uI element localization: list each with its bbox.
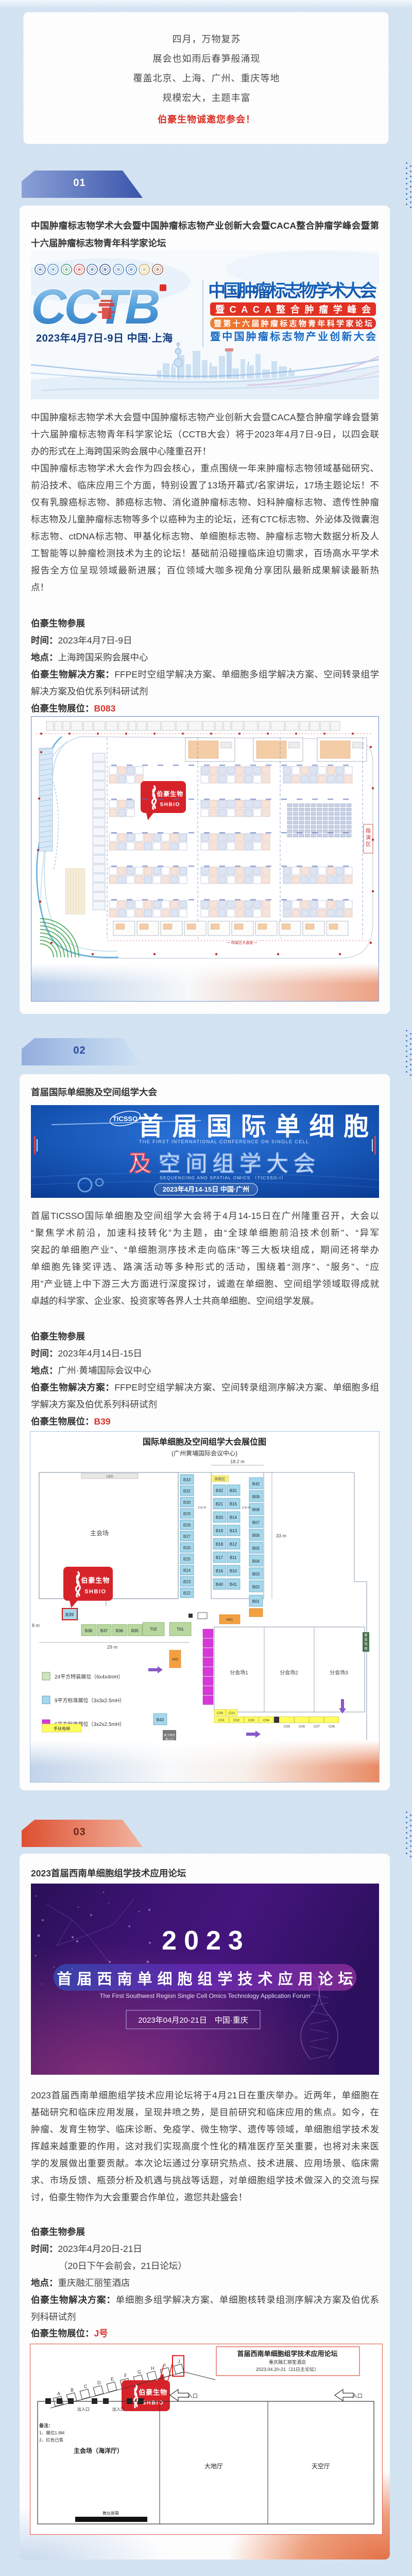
- svg-text:29 m: 29 m: [107, 1645, 117, 1650]
- svg-text:THE FIRST INTERNATIONAL CONFER: THE FIRST INTERNATIONAL CONFERENCE ON SI…: [139, 1139, 309, 1144]
- svg-text:B28: B28: [183, 1523, 191, 1528]
- svg-text:H02: H02: [172, 1658, 179, 1662]
- svg-text:直: 直: [364, 1638, 367, 1642]
- svg-text:2、红色已售: 2、红色已售: [39, 2437, 63, 2443]
- svg-text:B04: B04: [252, 1559, 260, 1564]
- svg-text:舞台屏幕: 舞台屏幕: [102, 2511, 119, 2516]
- svg-text:B12: B12: [230, 1542, 237, 1547]
- svg-text:B01: B01: [252, 1599, 260, 1604]
- svg-text:B26: B26: [183, 1546, 191, 1550]
- svg-text:地下停车: 地下停车: [164, 1733, 176, 1737]
- svg-text:区: 区: [366, 841, 371, 848]
- svg-text:入口: 入口: [352, 2394, 363, 2399]
- svg-text:B27: B27: [183, 1534, 191, 1539]
- svg-text:主会场（海洋厅）: 主会场（海洋厅）: [74, 2447, 123, 2454]
- svg-text:B: B: [71, 2387, 74, 2393]
- svg-text:B15: B15: [230, 1502, 237, 1506]
- svg-text:B02: B02: [252, 1585, 260, 1589]
- svg-text:国际单细胞及空间组学大会展位图: 国际单细胞及空间组学大会展位图: [143, 1437, 266, 1447]
- svg-text:B10: B10: [230, 1569, 237, 1573]
- svg-text:2023年4月7日-9日 中国·上海: 2023年4月7日-9日 中国·上海: [36, 332, 173, 344]
- svg-text:H01: H01: [227, 1618, 233, 1622]
- svg-text:B03: B03: [252, 1572, 260, 1577]
- svg-text:B32: B32: [183, 1489, 191, 1494]
- svg-text:C09: C09: [217, 1711, 223, 1715]
- svg-text:B37: B37: [100, 1629, 108, 1633]
- svg-text:梯: 梯: [364, 1647, 367, 1651]
- svg-text:C02: C02: [233, 1719, 239, 1722]
- svg-text:演: 演: [366, 834, 371, 841]
- svg-text:SEQUENCING AND SPATIAL OMICS （: SEQUENCING AND SPATIAL OMICS （TICSSO-I）: [160, 1175, 286, 1180]
- svg-text:出入口: 出入口: [112, 2406, 125, 2412]
- svg-text:G: G: [138, 2369, 141, 2375]
- svg-text:SHBIO: SHBIO: [160, 802, 180, 807]
- svg-text:(广州黄埔国际会议中心): (广州黄埔国际会议中心): [171, 1449, 237, 1457]
- svg-text:手扶电梯: 手扶电梯: [54, 1726, 70, 1731]
- svg-text:C05: C05: [284, 1725, 290, 1728]
- svg-text:C01: C01: [218, 1719, 225, 1722]
- svg-text:B13: B13: [230, 1529, 237, 1533]
- svg-text:J: J: [178, 2359, 180, 2364]
- svg-text:2023年4月14-15日 中国·广州: 2023年4月14-15日 中国·广州: [163, 1185, 249, 1193]
- svg-text:LED: LED: [106, 1475, 113, 1479]
- svg-text:C03: C03: [248, 1719, 254, 1722]
- svg-text:T02: T02: [150, 1627, 157, 1632]
- svg-text:SHBIO: SHBIO: [84, 1588, 106, 1595]
- svg-text:重庆融汇丽笙酒店: 重庆融汇丽笙酒店: [269, 2359, 306, 2365]
- svg-text:B40: B40: [216, 1582, 224, 1587]
- svg-text:H: H: [151, 2366, 154, 2371]
- svg-text:伯豪生物: 伯豪生物: [157, 790, 183, 798]
- svg-text:出入口: 出入口: [77, 2406, 90, 2412]
- svg-text:电: 电: [364, 1642, 367, 1646]
- svg-text:B42: B42: [252, 1482, 260, 1486]
- svg-text:B31: B31: [230, 1488, 237, 1493]
- svg-text:C: C: [84, 2384, 88, 2389]
- svg-text:2.6 m: 2.6 m: [198, 1506, 206, 1510]
- svg-text:B11: B11: [230, 1555, 237, 1560]
- svg-text:入口: 入口: [187, 2394, 198, 2399]
- svg-text:B29: B29: [183, 1512, 191, 1516]
- svg-text:B18: B18: [216, 1542, 224, 1547]
- svg-text:2023: 2023: [162, 1926, 250, 1956]
- svg-text:B38: B38: [85, 1629, 93, 1633]
- svg-text:C06: C06: [299, 1725, 305, 1728]
- svg-text:B22: B22: [183, 1591, 191, 1596]
- svg-text:B05: B05: [252, 1546, 260, 1551]
- svg-text:伯豪生物: 伯豪生物: [139, 2388, 167, 2396]
- svg-text:分会场2: 分会场2: [280, 1669, 298, 1676]
- svg-text:1、展位1.8M: 1、展位1.8M: [39, 2430, 64, 2435]
- svg-text:2.6 m: 2.6 m: [242, 1506, 250, 1510]
- svg-text:2023年04月20-21日 中国·重庆: 2023年04月20-21日 中国·重庆: [138, 2016, 248, 2025]
- svg-text:B39: B39: [65, 1612, 74, 1617]
- svg-text:首届国际单细胞: 首届国际单细胞: [138, 1113, 369, 1141]
- svg-text:B41: B41: [230, 1582, 237, 1587]
- svg-text:B07: B07: [252, 1520, 260, 1525]
- svg-text:18.2 m: 18.2 m: [230, 1459, 245, 1464]
- svg-text:分会场1: 分会场1: [230, 1669, 248, 1676]
- svg-text:C07: C07: [314, 1725, 320, 1728]
- svg-text:9平方标准展位（3x3x2.5mH）: 9平方标准展位（3x3x2.5mH）: [55, 1697, 125, 1704]
- svg-text:及: 及: [129, 1151, 151, 1176]
- svg-text:首届西南单细胞组学技术应用论坛: 首届西南单细胞组学技术应用论坛: [57, 1970, 353, 1988]
- svg-text:B20: B20: [216, 1515, 224, 1520]
- svg-text:SHBIO: SHBIO: [142, 2400, 164, 2406]
- svg-text:8 m: 8 m: [32, 1623, 40, 1628]
- svg-text:33 m: 33 m: [276, 1533, 286, 1538]
- svg-text:B25: B25: [183, 1557, 191, 1562]
- svg-text:B30: B30: [183, 1500, 191, 1505]
- svg-text:大地厅: 大地厅: [204, 2463, 223, 2470]
- svg-text:C04: C04: [263, 1719, 269, 1722]
- svg-text:B14: B14: [230, 1515, 237, 1520]
- svg-text:一 特装区大通道 一: 一 特装区大通道 一: [227, 940, 257, 945]
- svg-text:TICSSO: TICSSO: [113, 1115, 138, 1123]
- svg-text:C10: C10: [229, 1711, 235, 1715]
- svg-text:伯豪生物: 伯豪生物: [81, 1577, 110, 1584]
- svg-text:The First Southwest Region Sin: The First Southwest Region Single Cell O…: [99, 1992, 310, 1999]
- svg-text:暨第十六届肿瘤标志物青年科学家论坛: 暨第十六届肿瘤标志物青年科学家论坛: [214, 319, 372, 328]
- svg-text:A: A: [57, 2391, 60, 2396]
- svg-text:备注：: 备注：: [39, 2422, 53, 2428]
- svg-text:E: E: [111, 2377, 114, 2382]
- svg-text:B19: B19: [216, 1529, 224, 1533]
- svg-text:B36: B36: [116, 1629, 124, 1633]
- svg-text:首届西南单细胞组学技术应用论坛: 首届西南单细胞组学技术应用论坛: [237, 2350, 337, 2358]
- svg-text:T01: T01: [177, 1627, 184, 1632]
- svg-text:B33: B33: [183, 1478, 191, 1482]
- svg-text:主会场: 主会场: [90, 1530, 109, 1537]
- svg-text:I: I: [164, 2362, 166, 2367]
- svg-text:B17: B17: [216, 1555, 224, 1560]
- svg-text:CCTB: CCTB: [31, 279, 159, 334]
- svg-text:B43: B43: [157, 1718, 164, 1722]
- svg-text:B23: B23: [183, 1580, 191, 1584]
- svg-text:分会场3: 分会场3: [330, 1669, 348, 1676]
- svg-text:B16: B16: [216, 1569, 224, 1573]
- svg-text:C08: C08: [329, 1725, 335, 1728]
- svg-text:茶歇区: 茶歇区: [215, 1477, 226, 1481]
- svg-text:B08: B08: [252, 1507, 260, 1512]
- svg-text:B09: B09: [252, 1495, 260, 1499]
- svg-text:B35: B35: [131, 1629, 139, 1633]
- svg-text:D: D: [97, 2380, 101, 2385]
- svg-text:B24: B24: [183, 1568, 191, 1573]
- svg-text:B32: B32: [216, 1488, 224, 1493]
- svg-text:路: 路: [366, 827, 371, 834]
- svg-text:天空厅: 天空厅: [312, 2463, 330, 2470]
- svg-text:中国肿瘤标志物学术大会: 中国肿瘤标志物学术大会: [208, 281, 377, 301]
- svg-text:24平方特装展位（6x4x4mH）: 24平方特装展位（6x4x4mH）: [55, 1673, 123, 1680]
- svg-text:B06: B06: [252, 1533, 260, 1538]
- svg-text:垂: 垂: [364, 1634, 367, 1637]
- svg-text:2023.04.20-21（21日主论坛）: 2023.04.20-21（21日主论坛）: [256, 2366, 319, 2372]
- svg-text:B21: B21: [216, 1502, 224, 1506]
- svg-text:F: F: [124, 2373, 127, 2378]
